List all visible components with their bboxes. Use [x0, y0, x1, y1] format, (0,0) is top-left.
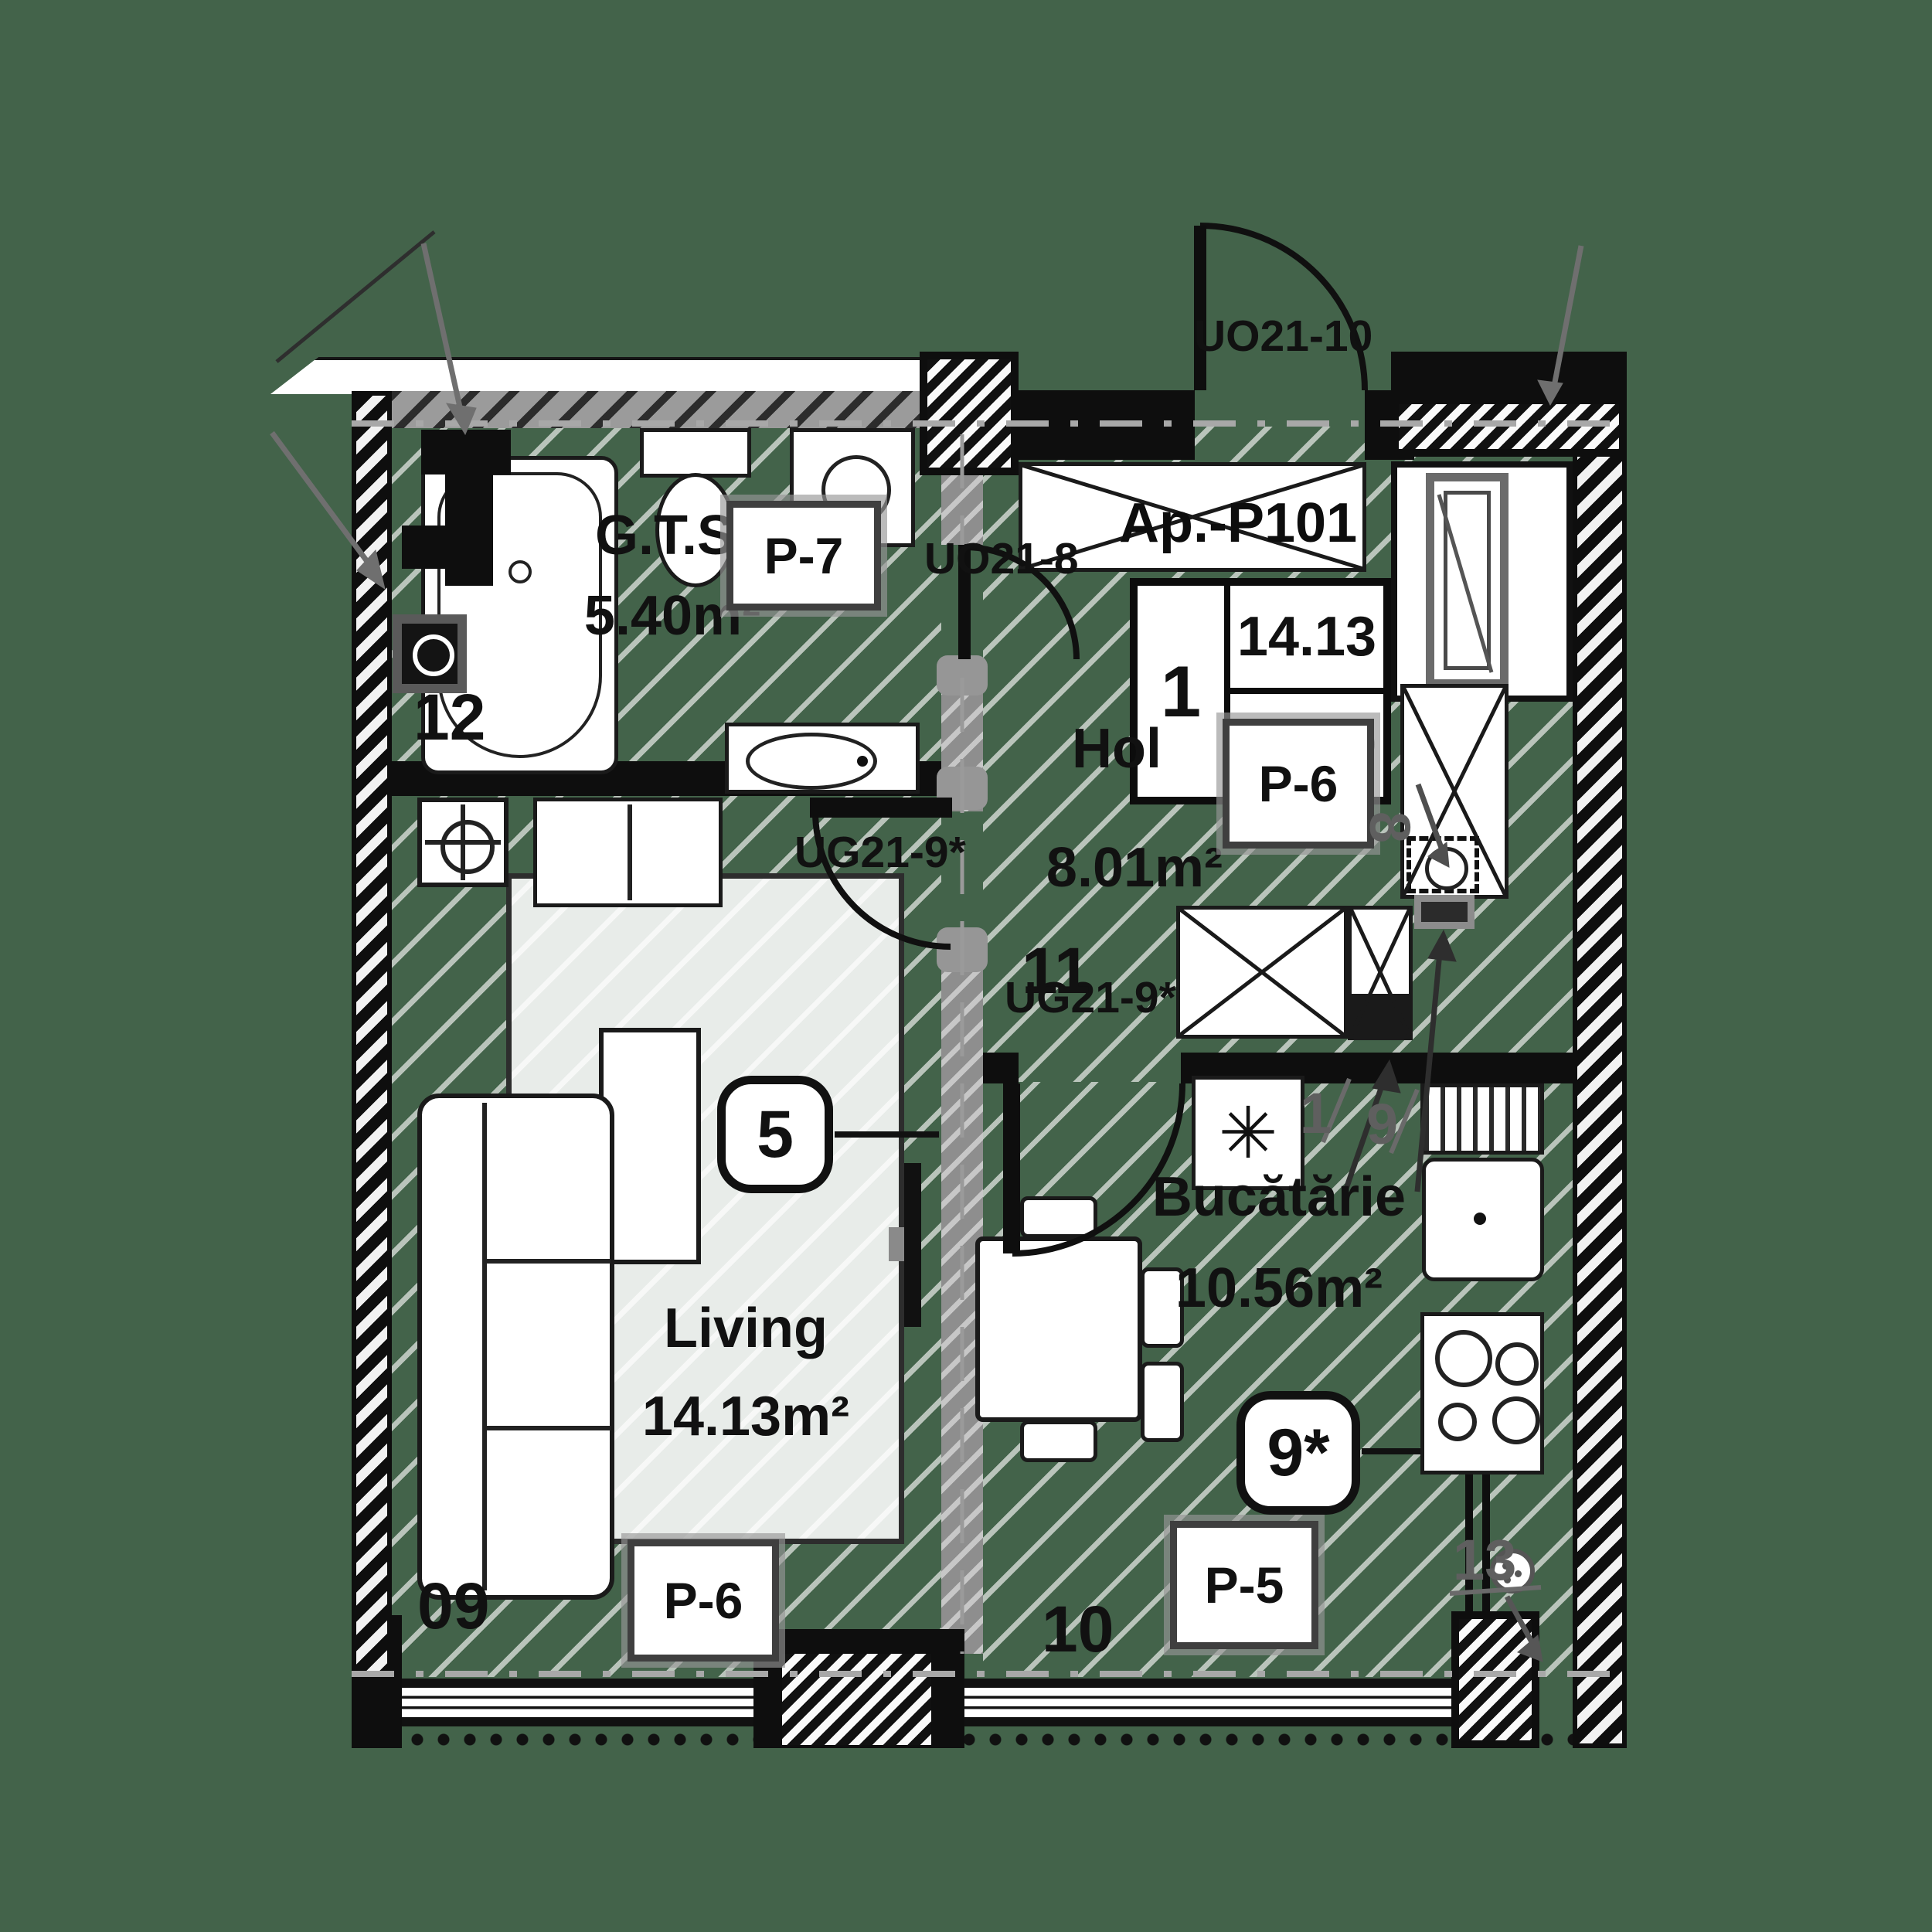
kitchen-position-badge: 9* [1236, 1391, 1360, 1515]
entrance-door-label: UO21-10 [1194, 311, 1372, 362]
wall-marker-11: 11 [1022, 934, 1090, 1009]
window-ref-arrow [1538, 246, 1581, 405]
wall-marker-10: 10 [1042, 1592, 1114, 1667]
bathroom-finish-tag: P-7 [726, 501, 881, 611]
corner-13-arrow [1507, 1597, 1543, 1662]
corner-marker-13: 13 [1453, 1527, 1516, 1593]
item-marker-1: 1 [1300, 1080, 1332, 1146]
living-area: 14.13m² [595, 1385, 896, 1448]
section-arrow-2 [272, 433, 385, 589]
kitchen-door-leaf [1003, 1083, 1020, 1253]
plan-linework [0, 0, 1932, 1932]
living-door-label: UG21-9* [794, 827, 966, 878]
entrance-door-leaf [1194, 226, 1206, 390]
living-finish-tag: P-6 [628, 1539, 779, 1662]
slab-edge-line [277, 232, 434, 362]
hallway-finish-tag: P-6 [1223, 719, 1374, 849]
living-position-badge: 5 [717, 1076, 833, 1193]
shaft-marker-8: 8 [1357, 811, 1423, 843]
bathroom-door-label: UO21-8 [924, 533, 1079, 584]
wall-marker-09: 09 [417, 1569, 489, 1644]
hall-cabinet-large-x [1179, 909, 1345, 1036]
info-room-area: 14.13 [1230, 586, 1383, 688]
section-arrow-1 [423, 243, 476, 434]
shaft-window-sash-line [1439, 495, 1492, 672]
item-marker-9: 9 [1366, 1091, 1398, 1157]
kitchen-name: Bucătărie [1097, 1165, 1461, 1229]
hall-cabinet-small-x [1351, 909, 1410, 1036]
entrance-door-arc [1200, 226, 1365, 390]
hallway-name: Hol [1051, 717, 1182, 781]
apartment-label: Ap.-P101 [1119, 492, 1357, 555]
wall-marker-12: 12 [413, 680, 485, 755]
kitchen-area: 10.56m² [1128, 1257, 1430, 1320]
kitchen-finish-tag: P-5 [1170, 1521, 1318, 1649]
living-name: Living [618, 1297, 873, 1360]
item-9-arrow [1417, 930, 1456, 1192]
living-door-leaf [810, 798, 952, 818]
floorplan-page: { "plan": { "apartment_label": "Ap.-P101… [0, 0, 1932, 1932]
